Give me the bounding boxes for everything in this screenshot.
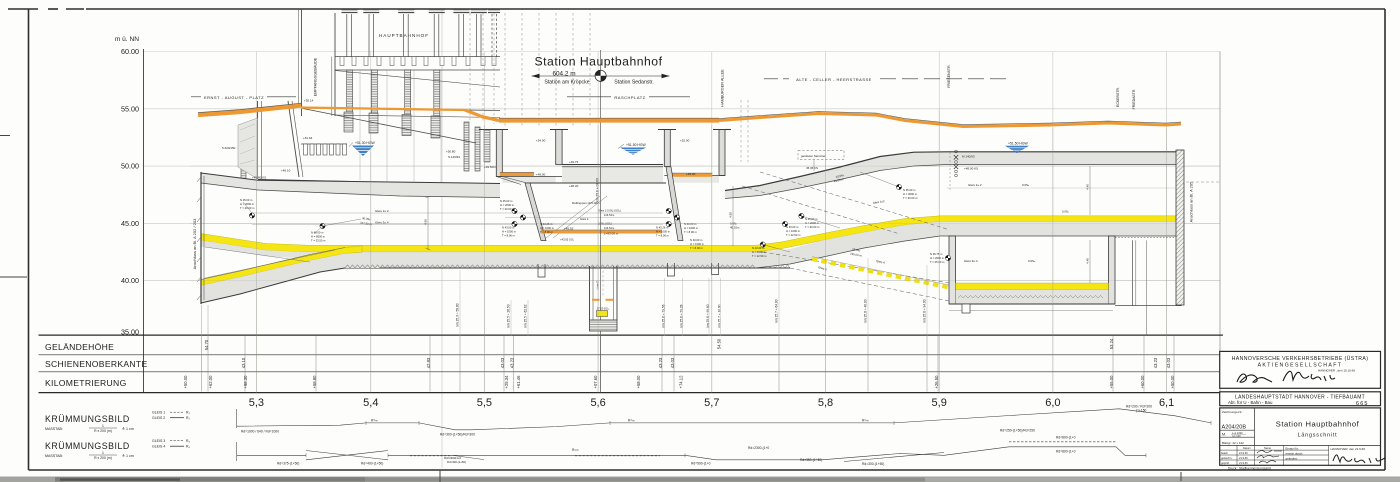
svg-text:Rd=300-(1+50)/Rd=300: Rd=300-(1+50)/Rd=300: [440, 433, 475, 437]
svg-text:54.70: 54.70: [204, 339, 209, 350]
svg-text:37.00 SO₃: 37.00 SO₃: [597, 306, 609, 310]
svg-text:R=∞: R=∞: [628, 418, 635, 422]
svg-text:geprüft: geprüft: [1221, 461, 1229, 465]
svg-text:+58.00: +58.00: [636, 375, 641, 389]
svg-text:T = 8.06 m: T = 8.06 m: [656, 234, 670, 238]
svg-text:+49.00: +49.00: [686, 172, 696, 176]
svg-text:R=∞: R=∞: [371, 418, 378, 422]
svg-text:T = 25.00 m: T = 25.00 m: [930, 260, 945, 264]
svg-text:Abt. für U - Bahn - Bau: Abt. für U - Bahn - Bau: [1228, 400, 1273, 405]
svg-text:N 45.00 m: N 45.00 m: [500, 199, 513, 203]
svg-text:Rd=300-(1+50): Rd=300-(1+50): [447, 460, 466, 464]
svg-text:45.45 KS: 45.45 KS: [806, 166, 818, 170]
svg-text:GELÄNDEHÖHE: GELÄNDEHÖHE: [45, 342, 114, 352]
svg-text:H = 1000 m: H = 1000 m: [684, 226, 699, 230]
svg-text:geändert:: geändert:: [1286, 456, 1298, 460]
svg-text:H = 2000 m: H = 2000 m: [240, 202, 255, 206]
svg-text:+07.60: +07.60: [593, 375, 598, 389]
svg-text:5,3: 5,3: [249, 397, 264, 409]
svg-text:S.140/93: S.140/93: [448, 155, 460, 159]
svg-text:GLEIS 4: GLEIS 4: [152, 445, 165, 449]
svg-text:km 25.6 + 79.56: km 25.6 + 79.56: [662, 304, 666, 327]
svg-text:+58.80: +58.80: [312, 375, 317, 389]
svg-text:km 25.8 + 94.00: km 25.8 + 94.00: [923, 299, 927, 322]
svg-text:Rd=500-(1+0: Rd=500-(1+0: [691, 462, 711, 466]
svg-text:40.02m: 40.02m: [730, 226, 740, 230]
svg-text:40.00: 40.00: [121, 276, 139, 285]
svg-text:HAMBURGER ALLEE: HAMBURGER ALLEE: [721, 69, 725, 107]
svg-text:T = 20.00 m: T = 20.00 m: [240, 206, 255, 210]
svg-text:Rd=800-(1+0: Rd=800-(1+0: [1056, 450, 1076, 454]
svg-text:Rd=1000 / 640 / Rd=1000: Rd=1000 / 640 / Rd=1000: [241, 430, 279, 434]
svg-text:km 25.6 + 07.60: km 25.6 + 07.60: [596, 178, 600, 202]
svg-text:Anschluss an Bl. A 202 / 203: Anschluss an Bl. A 202 / 203: [192, 218, 197, 269]
svg-text:Druck : Stadtvermessungsamt: Druck : Stadtvermessungsamt: [1228, 467, 1271, 471]
svg-text:54.50: 54.50: [716, 338, 721, 349]
svg-text:M.: M.: [1222, 433, 1226, 437]
svg-text:H = 3000 m: H = 3000 m: [903, 192, 918, 196]
svg-text:43.03: 43.03: [500, 357, 505, 368]
svg-text:6,1: 6,1: [1159, 397, 1174, 409]
svg-text:R=∞: R=∞: [862, 418, 869, 422]
svg-text:+49.75: +49.75: [569, 160, 579, 164]
svg-text:N 43.00 m: N 43.00 m: [752, 246, 765, 250]
svg-text:Station Hauptbahnhof: Station Hauptbahnhof: [535, 54, 663, 68]
svg-text:+74.12: +74.12: [679, 375, 684, 389]
svg-text:21.9.66: 21.9.66: [1239, 461, 1248, 465]
svg-text:5.200/150: 5.200/150: [222, 146, 236, 150]
svg-text:21.9.66: 21.9.66: [1239, 456, 1248, 460]
svg-text:FRIESENSTR.: FRIESENSTR.: [947, 64, 951, 87]
svg-text:HANNOVERSCHE VERKEHRSBETRIEBE: HANNOVERSCHE VERKEHRSBETRIEBE (ÜSTRA): [1232, 355, 1369, 362]
svg-text:Längsschnitt: Längsschnitt: [1298, 433, 1338, 439]
svg-text:43.23: 43.23: [658, 357, 663, 368]
svg-text:116.54m: 116.54m: [604, 226, 615, 230]
svg-text:43.23: 43.23: [510, 357, 515, 368]
svg-text:50.00: 50.00: [121, 162, 139, 171]
svg-text:+55.14: +55.14: [304, 99, 314, 103]
svg-text:43.23: 43.23: [1153, 357, 1158, 368]
svg-text:HANNOVER , den 10.10.66: HANNOVER , den 10.10.66: [1318, 369, 1355, 373]
svg-text:km 25.7 + 10.00: km 25.7 + 10.00: [717, 304, 721, 327]
svg-text:+51.50 HGW: +51.50 HGW: [1008, 141, 1028, 145]
svg-text:N 45.00 m: N 45.00 m: [903, 188, 916, 192]
svg-text:+45.92: +45.92: [564, 226, 574, 230]
svg-text:+48.30: +48.30: [569, 184, 579, 188]
svg-text:T = 20.00 m: T = 20.00 m: [500, 207, 515, 211]
svg-text:MASSTAB:: MASSTAB:: [45, 427, 63, 431]
svg-text:T = 33.50 m: T = 33.50 m: [311, 239, 326, 243]
svg-text:N 43.26 m: N 43.26 m: [540, 222, 553, 226]
svg-text:+51.94: +51.94: [303, 136, 313, 140]
svg-text:Rd=2300-(1+0: Rd=2300-(1+0: [748, 446, 769, 450]
svg-text:GLEIS 3: GLEIS 3: [152, 439, 165, 443]
svg-text:Rd=375-(1+50): Rd=375-(1+50): [277, 462, 299, 466]
svg-text:Gleis 3u.4: Gleis 3u.4: [375, 220, 389, 224]
svg-text:H = 2000 m: H = 2000 m: [500, 203, 515, 207]
svg-text:R=∞: R=∞: [572, 448, 579, 452]
svg-text:R x 200 (m): R x 200 (m): [94, 429, 112, 433]
svg-text:+25.34: +25.34: [504, 375, 509, 389]
svg-text:+51.50 HGW: +51.50 HGW: [626, 143, 646, 147]
svg-text:4.40: 4.40: [1085, 184, 1089, 190]
svg-text:H = 1000 m: H = 1000 m: [786, 229, 801, 233]
svg-text:N 45.00 m: N 45.00 m: [240, 198, 253, 202]
svg-text:H = 2000 m: H = 2000 m: [930, 256, 945, 260]
svg-text:km 25.5 + 62.62: km 25.5 + 62.62: [524, 304, 528, 327]
svg-text:Station Hauptbahnhof: Station Hauptbahnhof: [1276, 420, 1360, 429]
svg-text:R x 200 (m): R x 200 (m): [94, 456, 112, 460]
svg-text:Rd=350-(1+50): Rd=350-(1+50): [800, 458, 822, 462]
svg-text:H = 1000 m: H = 1000 m: [656, 230, 671, 234]
svg-text:R₃: R₃: [186, 439, 191, 443]
svg-text:M 140/93: M 140/93: [962, 155, 975, 159]
svg-text:60.00: 60.00: [121, 47, 139, 56]
svg-text:GLEIS 2: GLEIS 2: [152, 416, 165, 420]
svg-text:5,9: 5,9: [932, 397, 947, 409]
svg-text:Rd=300-(1+50): Rd=300-(1+50): [862, 462, 884, 466]
svg-text:5,8: 5,8: [818, 397, 833, 409]
svg-text:N 43.26 m: N 43.26 m: [656, 226, 669, 230]
svg-text:Gleis 1u.2: Gleis 1u.2: [968, 183, 982, 187]
svg-text:KILOMETRIERUNG: KILOMETRIERUNG: [45, 378, 127, 388]
svg-text:Gleis 3u.4: Gleis 3u.4: [964, 259, 978, 263]
svg-text:T = 30.00 m: T = 30.00 m: [903, 196, 918, 200]
svg-text:+48.00 KS: +48.00 KS: [964, 167, 978, 171]
svg-text:ERNST - AUGUST - PLATZ: ERNST - AUGUST - PLATZ: [204, 95, 264, 100]
svg-text:5,4: 5,4: [363, 397, 378, 409]
svg-text:km 25.3 + 58.80: km 25.3 + 58.80: [456, 303, 460, 326]
svg-text:km 25.5 + 26.50: km 25.5 + 26.50: [507, 304, 511, 327]
svg-text:5,5: 5,5: [477, 397, 492, 409]
svg-text:ü-1 100: ü-1 100: [1232, 435, 1241, 438]
svg-text:FRIEDASTR.: FRIEDASTR.: [1132, 89, 1136, 110]
svg-text:km 25.6 + 79.28: km 25.6 + 79.28: [680, 304, 684, 327]
svg-text:T = 8.06 m: T = 8.06 m: [540, 230, 554, 234]
svg-text:km 25.6 + 99.60: km 25.6 + 99.60: [706, 304, 710, 327]
svg-text:T = 8.06 m: T = 8.06 m: [502, 234, 516, 238]
svg-text:KRÜMMUNGSBILD: KRÜMMUNGSBILD: [45, 414, 130, 424]
svg-text:Station Sedanstr.: Station Sedanstr.: [614, 79, 654, 85]
svg-text:R₂: R₂: [186, 416, 191, 420]
svg-text:N 43.00 m: N 43.00 m: [786, 225, 799, 229]
svg-text:bearb.: bearb.: [1221, 451, 1229, 455]
svg-text:N 43.00 m: N 43.00 m: [502, 226, 515, 230]
svg-text:+49.10: +49.10: [281, 169, 291, 173]
svg-text:Blattgr: 42 x 122: Blattgr: 42 x 122: [1222, 441, 1244, 445]
svg-text:665: 665: [1356, 401, 1369, 407]
svg-text:116.54m: 116.54m: [604, 213, 615, 217]
svg-text:+52.00: +52.00: [680, 139, 690, 143]
svg-text:H = 1000 m: H = 1000 m: [690, 242, 705, 246]
svg-text:Rd=800-(1+0: Rd=800-(1+0: [1056, 436, 1076, 440]
svg-text:+50.00: +50.00: [183, 375, 188, 389]
svg-text:+26.50: +26.50: [934, 375, 939, 389]
svg-text:45.00: 45.00: [121, 219, 139, 228]
svg-text:T = 8.06 m: T = 8.06 m: [690, 246, 704, 250]
svg-text:21.9.66: 21.9.66: [1239, 451, 1248, 455]
svg-text:ECKERSTR.: ECKERSTR.: [1116, 87, 1120, 107]
svg-text:EMPFANGSGEBÄUDE: EMPFANGSGEBÄUDE: [314, 57, 318, 96]
svg-text:A204/20B: A204/20B: [1222, 425, 1247, 431]
svg-text:SCHIENENOBERKANTE: SCHIENENOBERKANTE: [45, 359, 148, 369]
svg-text:HANNOVER, den 21.9.66: HANNOVER, den 21.9.66: [1331, 447, 1366, 451]
svg-text:HAUPTBAHNHOF: HAUPTBAHNHOF: [379, 33, 429, 38]
svg-text:0.0‰: 0.0‰: [1062, 210, 1069, 214]
svg-text:43.10: 43.10: [241, 357, 246, 368]
svg-text:Rd=250-(1+50)/Rd=250: Rd=250-(1+50)/Rd=250: [1000, 429, 1035, 433]
svg-text:Anschluss an Bl. A 205: Anschluss an Bl. A 205: [1189, 181, 1194, 222]
svg-text:H = 2000 m: H = 2000 m: [805, 221, 820, 225]
svg-text:m ü. NN: m ü. NN: [115, 36, 139, 43]
svg-text:5,6: 5,6: [590, 397, 605, 409]
svg-text:5,7: 5,7: [704, 397, 719, 409]
svg-text:4.50: 4.50: [424, 219, 428, 225]
svg-text:+50.80: +50.80: [446, 150, 456, 154]
svg-text:43.03: 43.03: [670, 357, 675, 368]
svg-text:Gleis 2 0.0‰ (SO₁): Gleis 2 0.0‰ (SO₁): [598, 209, 621, 213]
svg-text:N 49.00 m: N 49.00 m: [311, 231, 324, 235]
svg-text:Name: Name: [1264, 446, 1271, 450]
svg-text:+49.80 KS: +49.80 KS: [252, 176, 266, 180]
svg-text:Rd=400-(1+50): Rd=400-(1+50): [361, 462, 383, 466]
svg-text:4.40: 4.40: [1085, 258, 1089, 264]
svg-text:Datum: Datum: [1243, 446, 1251, 450]
svg-text:+60.00: +60.00: [1140, 375, 1145, 389]
svg-text:Zeichnungs-Nr:: Zeichnungs-Nr:: [1222, 410, 1243, 414]
svg-text:+61.46: +61.46: [516, 375, 521, 389]
svg-text:MASSTAB:: MASSTAB:: [45, 454, 63, 458]
svg-text:1: 1: [102, 451, 104, 455]
svg-text:1: 1: [102, 424, 104, 428]
svg-text:6,0: 6,0: [1045, 397, 1060, 409]
svg-text:0.0‰: 0.0‰: [1028, 259, 1035, 263]
svg-text:+43.05 SO₁: +43.05 SO₁: [560, 237, 574, 241]
svg-text:H = 1000 m: H = 1000 m: [540, 226, 555, 230]
svg-text:KRÜMMUNGSBILD: KRÜMMUNGSBILD: [45, 441, 130, 451]
svg-text:Station am Kröpcke: Station am Kröpcke: [544, 79, 589, 85]
svg-text:H = 1000 m: H = 1000 m: [502, 230, 517, 234]
svg-text:N 43.00 m: N 43.00 m: [690, 238, 703, 242]
svg-text:GLEIS 1: GLEIS 1: [152, 411, 165, 415]
svg-text:42.83: 42.83: [426, 357, 431, 368]
svg-text:+98.30: +98.30: [243, 375, 248, 389]
svg-text:4.50: 4.50: [728, 212, 732, 218]
svg-text:km 25.8 + 40.00: km 25.8 + 40.00: [864, 299, 868, 322]
svg-text:R₄: R₄: [186, 445, 191, 449]
svg-text:+49.60m: +49.60m: [484, 165, 496, 169]
svg-text:Ersatz für:: Ersatz für:: [1286, 447, 1299, 451]
svg-text:53.24: 53.24: [1109, 338, 1114, 349]
svg-text:ersetzt durch:: ersetzt durch:: [1286, 451, 1304, 455]
svg-text:≙ 1 cm: ≙ 1 cm: [122, 426, 134, 431]
svg-text:0.0‰: 0.0‰: [1022, 183, 1029, 187]
svg-text:L=93.00 m: L=93.00 m: [604, 231, 619, 235]
svg-text:+62.00: +62.00: [208, 375, 213, 389]
svg-text:Linie D: Linie D: [596, 281, 600, 290]
svg-text:+55.00: +55.00: [1109, 375, 1114, 389]
svg-text:RASCHPLATZ: RASCHPLATZ: [614, 95, 645, 100]
svg-text:+49.00: +49.00: [536, 172, 546, 176]
svg-text:Gleis 1u.2: Gleis 1u.2: [375, 209, 389, 213]
svg-text:+54.00: +54.00: [536, 139, 546, 143]
svg-text:gelotteter Sammler: gelotteter Sammler: [801, 154, 825, 158]
svg-text:N 39.75 m: N 39.75 m: [930, 252, 943, 256]
svg-text:H = 8500 m: H = 8500 m: [311, 235, 326, 239]
svg-text:km 25.7 + 64.00: km 25.7 + 64.00: [775, 299, 779, 322]
svg-text:T = 8.06 m: T = 8.06 m: [684, 230, 698, 234]
svg-text:T = 12.50 m: T = 12.50 m: [786, 233, 801, 237]
svg-text:T = 30.00 m: T = 30.00 m: [805, 225, 820, 229]
svg-text:H = 1000 m: H = 1000 m: [752, 250, 767, 254]
svg-text:N 43.00 m: N 43.00 m: [684, 222, 697, 226]
svg-text:T = 12.50 m: T = 12.50 m: [752, 254, 767, 258]
svg-text:≙ 1 cm: ≙ 1 cm: [122, 453, 134, 458]
svg-text:(1+150: (1+150: [1136, 409, 1147, 413]
svg-text:gezeichn.: gezeichn.: [1221, 456, 1232, 460]
svg-text:55.00: 55.00: [121, 104, 139, 113]
svg-text:ALTE - CELLER - HEERSTRASSE: ALTE - CELLER - HEERSTRASSE: [796, 77, 872, 82]
svg-text:+51.30 HGW: +51.30 HGW: [355, 141, 375, 145]
svg-text:+50.00: +50.00: [1170, 375, 1175, 389]
